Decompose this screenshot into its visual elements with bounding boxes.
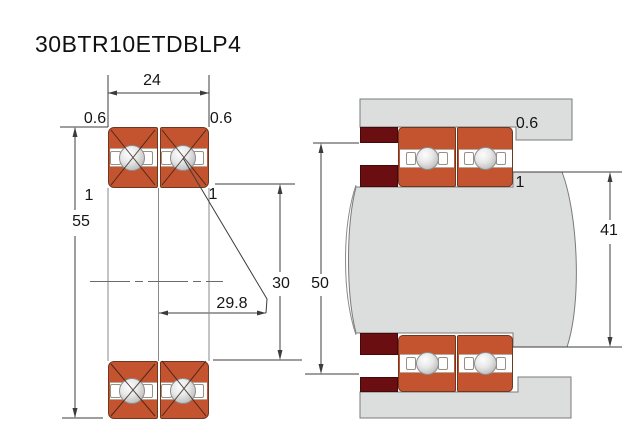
dim-outer-chamfer-right: 0.6 — [210, 111, 232, 127]
dim-shaft-fillet: 1 — [516, 175, 525, 191]
dim-shaft-shoulder: 41 — [598, 223, 620, 239]
dimension-lines — [0, 0, 640, 440]
dim-bore: 30 — [270, 276, 292, 292]
dimension-arrows — [73, 91, 613, 419]
dim-outer-diameter: 55 — [70, 214, 92, 230]
dim-load-center: 29.8 — [216, 296, 247, 312]
dim-inner-chamfer-left: 1 — [85, 188, 94, 204]
load-center-line — [183, 158, 267, 313]
dim-width: 24 — [143, 73, 161, 89]
dim-inner-chamfer-right: 1 — [209, 187, 218, 203]
dim-housing-fillet: 0.6 — [516, 116, 538, 132]
dim-outer-chamfer-left: 0.6 — [84, 111, 106, 127]
bearing-drawing: 30BTR10ETDBLP4 — [0, 0, 640, 440]
part-number-title: 30BTR10ETDBLP4 — [35, 31, 241, 58]
dim-housing-shoulder: 50 — [309, 276, 331, 292]
